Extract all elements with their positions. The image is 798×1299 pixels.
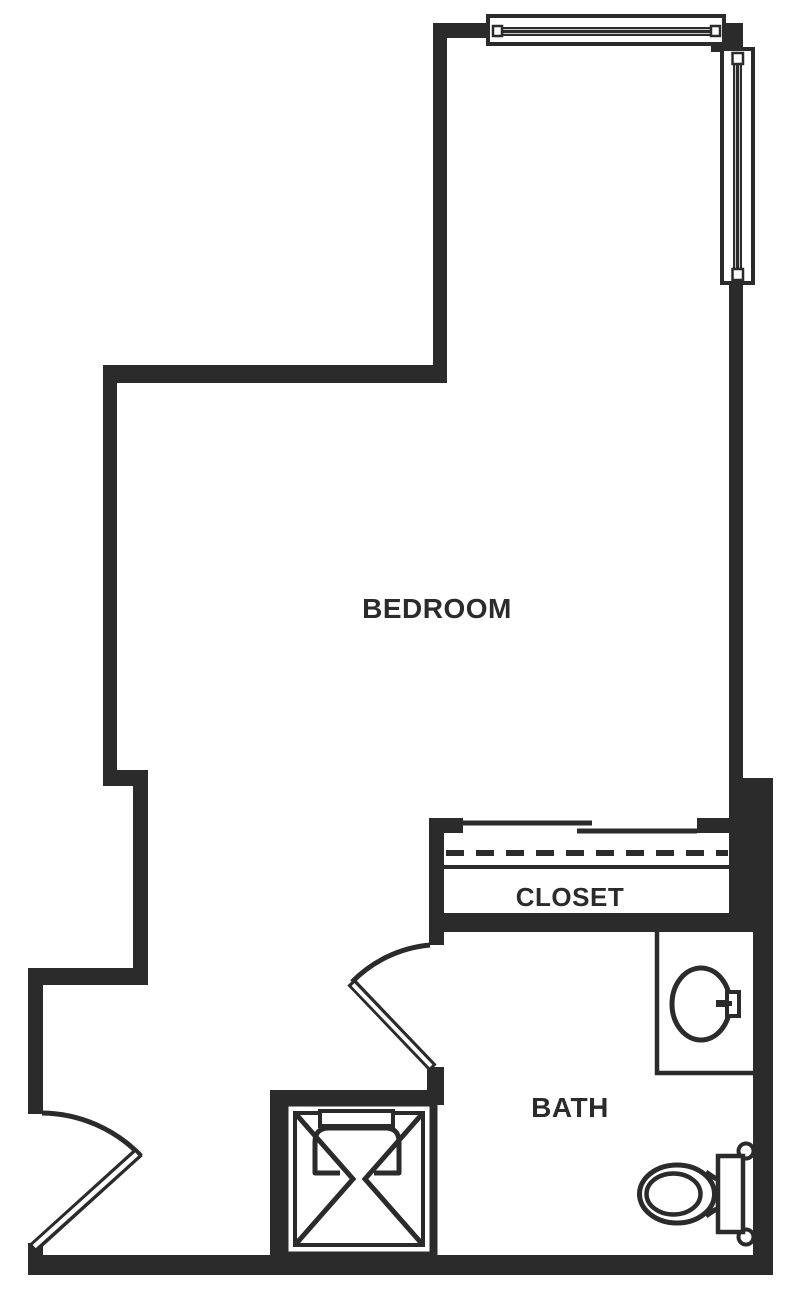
right-window-jamb-block (733, 53, 744, 64)
wall-bottom (28, 1255, 773, 1275)
wall-left-lower (28, 968, 43, 1114)
wall-right-closet-outer (743, 778, 773, 931)
wall-right-bath (753, 931, 773, 1261)
bath-swing-door (351, 945, 433, 1068)
floor-plan-drawing: BEDROOM CLOSET BATH (0, 0, 798, 1299)
toilet (640, 1144, 754, 1245)
wall-closet-jamb-left (429, 818, 463, 833)
wall-right-upper (729, 284, 743, 931)
top-window-jamb-block (711, 26, 720, 36)
wall-left-middle (133, 770, 148, 985)
right-window (722, 49, 753, 283)
vanity-sink (657, 932, 753, 1073)
faucet-handle (718, 1001, 732, 1006)
right-window-jamb-block (733, 269, 744, 280)
bath-label: BATH (531, 1092, 609, 1123)
closet-fittings (444, 823, 729, 867)
wall-shower-left (270, 1090, 285, 1257)
bath-door-swing-arc (352, 945, 430, 982)
entry-swing-door (32, 1113, 141, 1249)
wall-closet-jamb-right (697, 818, 730, 833)
closet-label: CLOSET (516, 882, 624, 912)
entry-door-swing-arc (42, 1113, 141, 1156)
entry-door-leaf-inner (34, 1154, 137, 1247)
top-window-jamb-block (493, 26, 502, 36)
wall-left-upper (103, 365, 117, 785)
wall-mid-horizontal (103, 365, 447, 383)
top-window (488, 16, 724, 44)
wall-left-jog-lower (28, 968, 148, 985)
wall-closet-bottom (429, 913, 773, 932)
shower-stall (286, 1104, 435, 1255)
walls (28, 23, 773, 1275)
toilet-tank (718, 1156, 743, 1232)
bath-door-leaf-inner (353, 985, 431, 1067)
wall-upper-left-vertical (433, 23, 447, 383)
shower-threshold (320, 1111, 393, 1126)
bedroom-label: BEDROOM (362, 593, 512, 624)
floor-plan: BEDROOM CLOSET BATH (0, 0, 798, 1299)
